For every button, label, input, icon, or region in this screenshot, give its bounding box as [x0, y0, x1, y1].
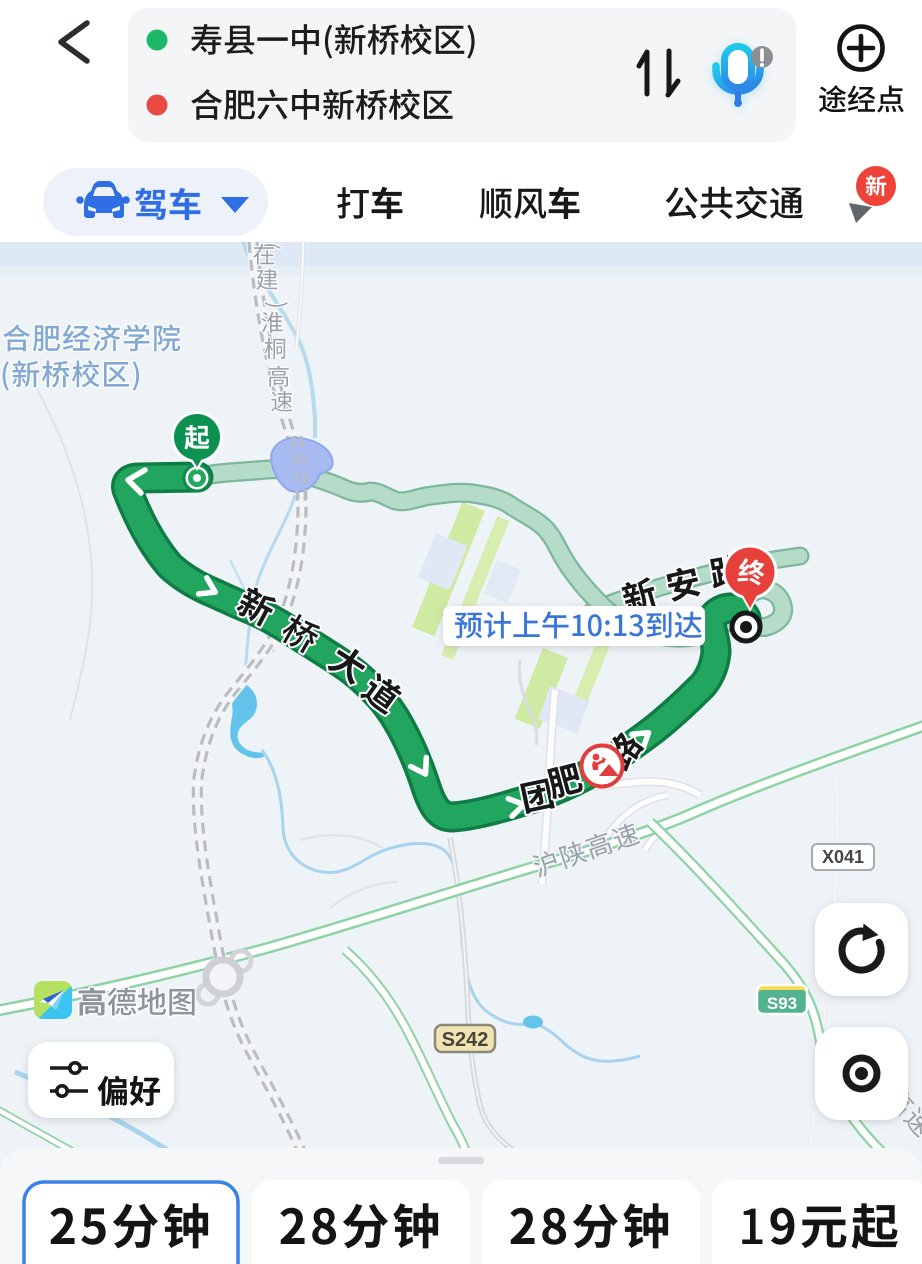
svg-text:S93: S93 — [767, 994, 797, 1013]
svg-text:X041: X041 — [822, 847, 864, 867]
svg-text:S242: S242 — [442, 1029, 489, 1051]
